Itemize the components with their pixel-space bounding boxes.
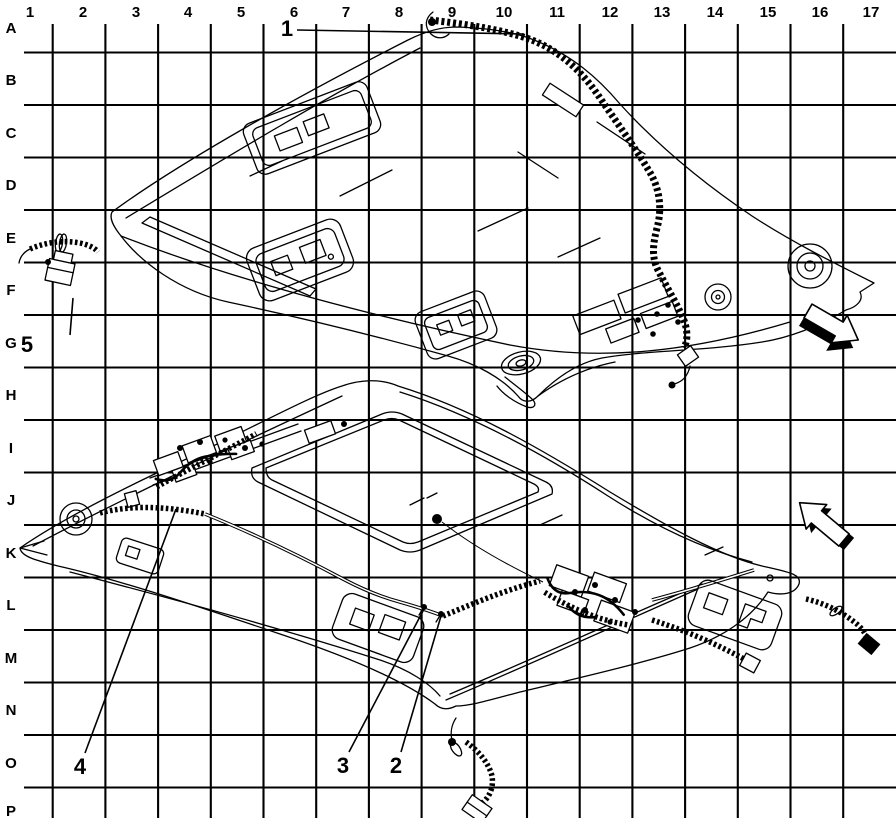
callout-4-label: 4: [74, 754, 87, 779]
grid-column-label: 10: [496, 4, 513, 21]
pigtail-harness-bottom-center: [448, 718, 492, 818]
grid-row-label: J: [7, 492, 15, 509]
grid-column-label: 14: [707, 4, 724, 21]
grid-column-labels: 1 2 3 4 5 6 7 8 9 10 11 12 13 14 15 16 1…: [26, 4, 880, 21]
rear-console-underside: [685, 577, 784, 652]
grid-row-label: I: [9, 440, 13, 457]
grid-row-label: B: [6, 72, 17, 89]
front-console-recess: [243, 216, 356, 304]
roof-headliner-harness-diagram: 1 2 3 4 5 6 7 8 9 10 11 12 13 14 15 16 1…: [0, 0, 896, 818]
diagram-page: 1 2 3 4 5 6 7 8 9 10 11 12 13 14 15 16 1…: [0, 0, 896, 818]
pigtail-harness-left: [19, 234, 98, 286]
callout-5-label: 5: [21, 332, 33, 357]
headliner-underside-view: [20, 381, 799, 709]
grid-column-label: 7: [342, 4, 350, 21]
grid-row-label: O: [5, 755, 17, 772]
grid-column-label: 8: [395, 4, 403, 21]
callout-3-label: 3: [337, 753, 349, 778]
grid-row-label: F: [6, 282, 15, 299]
grid-row-label: C: [6, 125, 17, 142]
grid-row-label: D: [6, 177, 17, 194]
grid-row-label: N: [6, 702, 17, 719]
left-grommet: [60, 503, 92, 535]
grid-column-label: 1: [26, 4, 34, 21]
reference-grid: [24, 24, 896, 818]
roof-harness: [426, 12, 698, 389]
grid-row-label: K: [6, 545, 17, 562]
grid-column-label: 5: [237, 4, 245, 21]
mid-console-recess: [412, 288, 499, 361]
grid-column-label: 12: [602, 4, 619, 21]
callout-2-label: 2: [390, 753, 402, 778]
grid-row-label: L: [6, 597, 15, 614]
headliner-harness: [100, 491, 760, 673]
sunroof-opening: [241, 79, 384, 177]
grid-column-label: 11: [549, 4, 565, 21]
direction-arrow-lower-right: [795, 297, 866, 362]
grid-column-label: 2: [79, 4, 87, 21]
grid-row-label: H: [6, 387, 17, 404]
rear-harness-cluster: [539, 558, 643, 633]
grid-row-labels: A B C D E F G H I J K L M N O P: [5, 20, 18, 818]
grid-row-label: G: [5, 335, 17, 352]
grid-column-label: 16: [812, 4, 829, 21]
direction-arrow-upper-left: [789, 490, 859, 556]
dome-lamp-vent: [499, 347, 543, 379]
grid-column-label: 4: [184, 4, 193, 21]
grid-row-label: M: [5, 650, 18, 667]
callout-1-label: 1: [281, 16, 293, 41]
grid-column-label: 17: [863, 4, 880, 21]
grid-column-label: 13: [654, 4, 671, 21]
front-console-underside: [329, 591, 426, 666]
speaker-grommet: [705, 284, 731, 310]
grid-row-label: E: [6, 230, 16, 247]
grid-column-label: 9: [448, 4, 456, 21]
grid-row-label: P: [6, 803, 16, 818]
grid-column-label: 15: [760, 4, 777, 21]
grid-row-label: A: [6, 20, 17, 37]
visor-rod-strip: [142, 217, 316, 296]
grid-column-label: 3: [132, 4, 140, 21]
